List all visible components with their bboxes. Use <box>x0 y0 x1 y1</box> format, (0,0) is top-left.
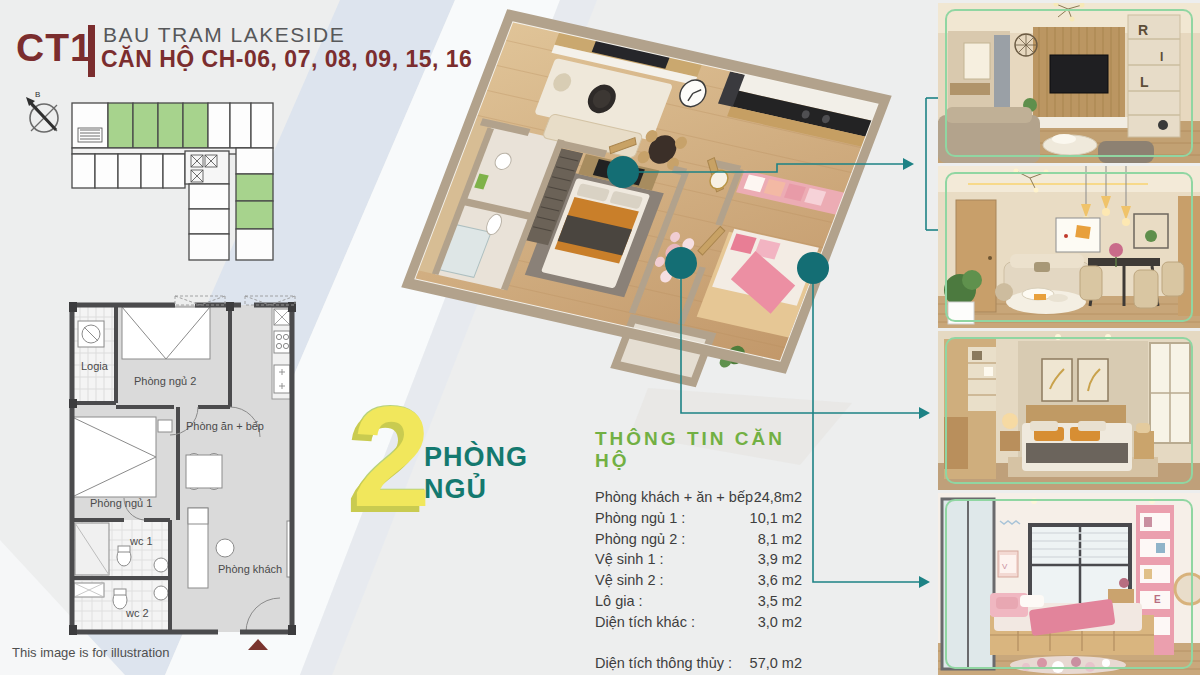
apartment-info-panel: THÔNG TIN CĂN HỘ Phòng khách + ăn + bếp … <box>595 428 802 675</box>
info-gap <box>595 635 802 655</box>
info-row: Diện tích khác :3,0 m2 <box>595 614 802 635</box>
photo-living-room: R I L <box>938 3 1200 163</box>
badge-word-2: NGỦ <box>424 474 487 505</box>
label-bedroom1: Phòng ngủ 1 <box>90 497 152 509</box>
info-row-label: Diện tích khác : <box>595 614 695 630</box>
info-row-label: Phòng ngủ 1 : <box>595 510 685 526</box>
info-row-value: 8,1 m2 <box>758 531 802 547</box>
info-row-label: Vệ sinh 2 : <box>595 572 664 588</box>
info-title: THÔNG TIN CĂN HỘ <box>595 428 802 472</box>
photo-living-room-art: R I L <box>938 3 1200 163</box>
label-bedroom2: Phòng ngủ 2 <box>134 375 196 387</box>
label-logia: Logia <box>81 360 109 372</box>
info-row-label: Vệ sinh 1 : <box>595 551 664 567</box>
info-row: Diện tích thông thủy :57,0 m2 <box>595 655 802 675</box>
info-totals: Diện tích thông thủy :57,0 m2Diện tích t… <box>595 655 802 675</box>
header-divider <box>88 25 95 77</box>
badge-word-1: PHÒNG <box>424 442 528 473</box>
info-row-value: 3,5 m2 <box>758 593 802 609</box>
floor-plate-keyplan <box>58 96 283 268</box>
photo-bedroom-1-art <box>938 331 1200 490</box>
info-row: Phòng khách + ăn + bếp :24,8m2 <box>595 489 802 510</box>
block-code: CT1 <box>16 26 93 70</box>
svg-text:V: V <box>1002 562 1008 571</box>
info-row-label: Lô gia : <box>595 593 643 609</box>
info-row-value: 24,8m2 <box>754 489 802 505</box>
label-wc1: wc 1 <box>129 535 153 547</box>
info-row-label: Diện tích thông thủy : <box>595 655 732 671</box>
label-wc2: wc 2 <box>125 607 149 619</box>
info-row: Phòng ngủ 1 :10,1 m2 <box>595 510 802 531</box>
badge-number: 2 <box>352 386 431 528</box>
info-row: Lô gia :3,5 m2 <box>595 593 802 614</box>
entrance-arrow <box>248 639 268 650</box>
photo-bedroom-1 <box>938 331 1200 490</box>
label-living: Phòng khách <box>218 563 282 575</box>
photo-dining-room-art <box>938 166 1200 328</box>
info-row: Phòng ngủ 2 :8,1 m2 <box>595 531 802 552</box>
info-row: Vệ sinh 2 :3,6 m2 <box>595 572 802 593</box>
info-row-value: 10,1 m2 <box>750 510 802 526</box>
svg-text:L: L <box>1140 74 1149 90</box>
info-row-value: 57,0 m2 <box>750 655 802 671</box>
info-row-value: 3,0 m2 <box>758 614 802 630</box>
photo-bedroom-2-art: E V <box>938 493 1200 675</box>
svg-text:I: I <box>1160 50 1163 64</box>
floorplan-2d: Logia Phòng ngủ 2 Phòng ăn + bếp Phòng n… <box>58 295 320 667</box>
photo-bedroom-2: E V <box>938 493 1200 675</box>
disclaimer-text: This image is for illustration <box>12 645 170 660</box>
info-row-label: Phòng ngủ 2 : <box>595 531 685 547</box>
brochure-page: CT1 BAU TRAM LAKESIDE CĂN HỘ CH-06, 07, … <box>0 0 1200 675</box>
floorplan-3d <box>395 8 920 448</box>
bedroom-count-badge: 2 PHÒNG NGỦ <box>352 386 572 526</box>
info-row: Vệ sinh 1 :3,9 m2 <box>595 551 802 572</box>
svg-text:E: E <box>1154 594 1161 605</box>
photo-dining-room <box>938 166 1200 328</box>
info-row-value: 3,6 m2 <box>758 572 802 588</box>
info-rows: Phòng khách + ăn + bếp :24,8m2Phòng ngủ … <box>595 489 802 635</box>
svg-text:R: R <box>1138 22 1148 38</box>
svg-text:B: B <box>35 90 40 99</box>
info-row-label: Phòng khách + ăn + bếp : <box>595 489 761 505</box>
label-kitchen: Phòng ăn + bếp <box>186 420 264 432</box>
project-name: BAU TRAM LAKESIDE <box>103 23 345 47</box>
info-row-value: 3,9 m2 <box>758 551 802 567</box>
